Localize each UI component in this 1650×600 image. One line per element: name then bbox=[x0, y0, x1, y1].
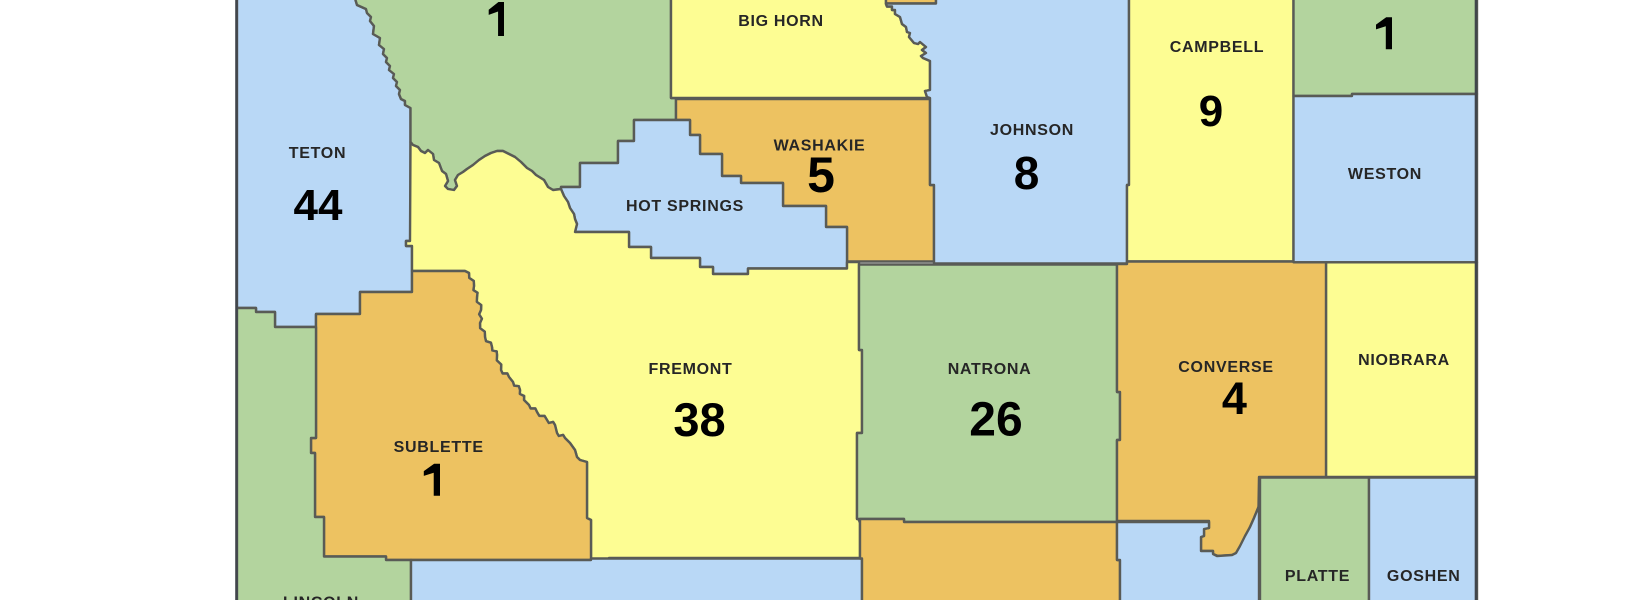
svg-text:8: 8 bbox=[1014, 147, 1040, 199]
svg-text:HOT SPRINGS: HOT SPRINGS bbox=[626, 198, 744, 215]
svg-text:BIG HORN: BIG HORN bbox=[738, 13, 824, 30]
svg-text:9: 9 bbox=[1199, 87, 1223, 136]
svg-text:SUBLETTE: SUBLETTE bbox=[394, 439, 484, 456]
svg-text:NIOBRARA: NIOBRARA bbox=[1358, 352, 1450, 369]
svg-text:38: 38 bbox=[673, 393, 725, 446]
svg-text:5: 5 bbox=[807, 147, 835, 203]
svg-text:GOSHEN: GOSHEN bbox=[1387, 568, 1461, 585]
svg-text:44: 44 bbox=[294, 181, 343, 230]
svg-text:26: 26 bbox=[969, 394, 1022, 447]
svg-text:JOHNSON: JOHNSON bbox=[990, 122, 1074, 139]
svg-text:CAMPBELL: CAMPBELL bbox=[1170, 39, 1264, 56]
svg-text:FREMONT: FREMONT bbox=[648, 361, 732, 378]
svg-text:TETON: TETON bbox=[289, 145, 346, 162]
svg-text:NATRONA: NATRONA bbox=[948, 361, 1032, 378]
svg-text:PLATTE: PLATTE bbox=[1285, 568, 1350, 585]
svg-text:LINCOLN: LINCOLN bbox=[283, 595, 359, 600]
svg-text:WESTON: WESTON bbox=[1348, 166, 1422, 183]
svg-text:4: 4 bbox=[1222, 373, 1247, 424]
